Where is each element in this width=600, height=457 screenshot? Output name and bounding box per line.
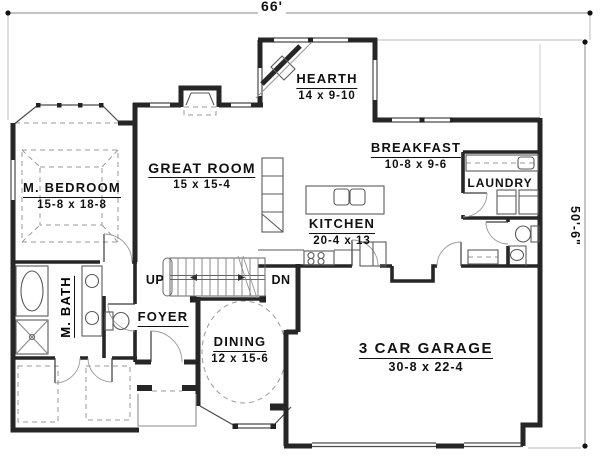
- fireplace: [186, 93, 214, 105]
- room-label-dining: DINING 12 x 15-6: [211, 333, 269, 366]
- room-label-foyer: FOYER: [138, 308, 189, 327]
- room-label-breakfast: BREAKFAST 10-8 x 9-6: [371, 139, 461, 172]
- dimension-right-height: 50'-6": [568, 203, 582, 249]
- room-label-laundry: LAUNDRY: [467, 174, 532, 192]
- floor-plan-drawing: [0, 0, 600, 457]
- stairs: [163, 256, 265, 298]
- dryer: [519, 190, 538, 214]
- room-label-kitchen: KITCHEN 20-4 x 13: [309, 215, 375, 248]
- washer: [497, 190, 516, 214]
- room-label-great-room: GREAT ROOM 15 x 15-4: [148, 160, 255, 193]
- room-label-master-bedroom: M. BEDROOM 15-8 x 18-8: [23, 179, 121, 212]
- room-label-garage: 3 CAR GARAGE 30-8 x 22-4: [359, 340, 493, 375]
- room-label-master-bath: M. BATH: [57, 276, 75, 338]
- floor-plan: 66' 50'-6" M. BEDROOM 15-8 x 18-8 M. BAT…: [0, 0, 600, 457]
- dimension-top-width: 66': [258, 0, 286, 14]
- stairs-down-label: DN: [271, 273, 290, 287]
- stairs-up-label: UP: [146, 273, 164, 287]
- cabinets: [262, 158, 283, 232]
- toilet: [105, 312, 113, 330]
- island: [306, 186, 384, 214]
- room-label-hearth: HEARTH 14 x 9-10: [296, 70, 357, 103]
- vanity: [82, 266, 102, 336]
